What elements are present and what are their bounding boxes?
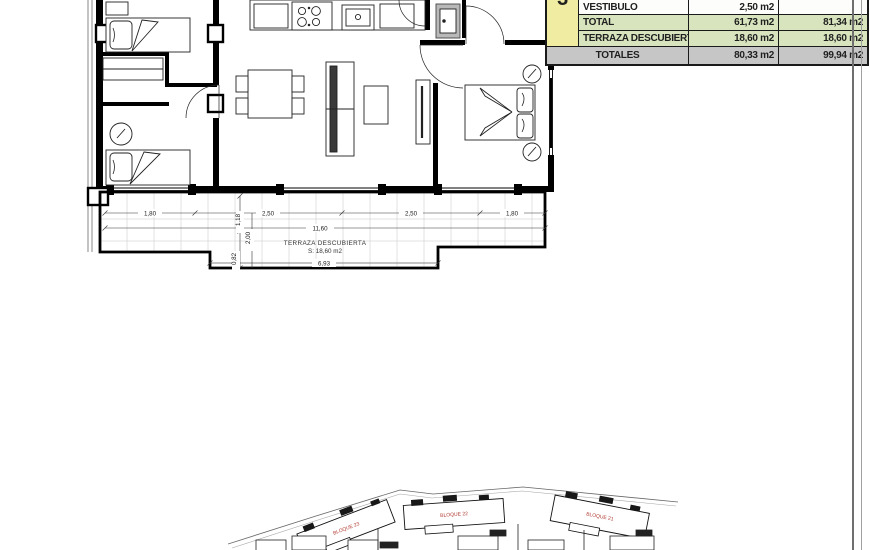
round-table-icon (110, 123, 132, 145)
row-total-label: TOTAL (579, 15, 689, 31)
stove-icon (292, 2, 332, 30)
drawing-sheet: 1,80 2,50 2,50 1,80 11,60 6,93 1,18 2,00… (0, 0, 870, 550)
bedroom-2 (106, 123, 190, 185)
totals-label: TOTALES (547, 47, 689, 64)
bedroom-1 (106, 2, 190, 52)
area-summary-table: 3 VESTIBULO 2,50 m2 TOTAL 61,73 m2 81,34… (545, 0, 869, 66)
row-vestibulo-superficie: 2,50 m2 (689, 0, 779, 15)
terrace-label: TERRAZA DESCUBIERTA S: 18,60 m2 (284, 240, 367, 255)
floor-plan: 1,80 2,50 2,50 1,80 11,60 6,93 1,18 2,00… (80, 0, 580, 290)
row-total-superficie: 61,73 m2 (689, 15, 779, 31)
nightstand-icon (523, 65, 541, 83)
nightstand-icon-2 (523, 143, 541, 161)
dim-overall-width: 11,60 (312, 226, 328, 233)
coffee-table (364, 86, 388, 124)
dim-terrace-width: 6,93 (318, 261, 331, 268)
tv-sideboard (416, 80, 430, 144)
site-block-22: BLOQUE 22 (403, 492, 505, 536)
totals-superficie: 80,33 m2 (689, 47, 779, 64)
group-number: 3 (557, 0, 568, 9)
left-wall-face (88, 0, 92, 252)
site-plan: BLOQUE 23 BLOQUE 22 BLOQUE 21 (228, 478, 680, 550)
door-arc-hall (466, 6, 504, 44)
row-terraza-label: TERRAZA DESCUBIERTA (579, 31, 689, 47)
terrace-area: S: 18,60 m2 (308, 248, 342, 255)
wardrobe (103, 58, 163, 80)
row-vestibulo-label: VESTIBULO (579, 0, 689, 15)
dim-vert-2: 2,00 (245, 231, 252, 244)
shower-unit (436, 4, 460, 38)
terrace-name: TERRAZA DESCUBIERTA (284, 240, 367, 247)
dim-vert-3: 0,82 (231, 252, 238, 265)
dim-bottom-2: 2,50 (262, 211, 275, 218)
dim-vert-1: 1,18 (235, 213, 242, 226)
sofa (326, 62, 354, 156)
row-terraza-superficie: 18,60 m2 (689, 31, 779, 47)
sink-icon (342, 5, 374, 30)
kitchen (250, 0, 425, 30)
dim-bottom-4: 1,80 (506, 211, 519, 218)
group-number-cell: 3 (547, 0, 579, 47)
dim-bottom-3: 2,50 (405, 211, 418, 218)
sheet-border-line (852, 0, 854, 550)
bedroom-right (465, 65, 541, 161)
sheet-border-line-outer (861, 0, 862, 550)
dim-bottom-1: 1,80 (144, 211, 157, 218)
dining-table (236, 70, 304, 118)
